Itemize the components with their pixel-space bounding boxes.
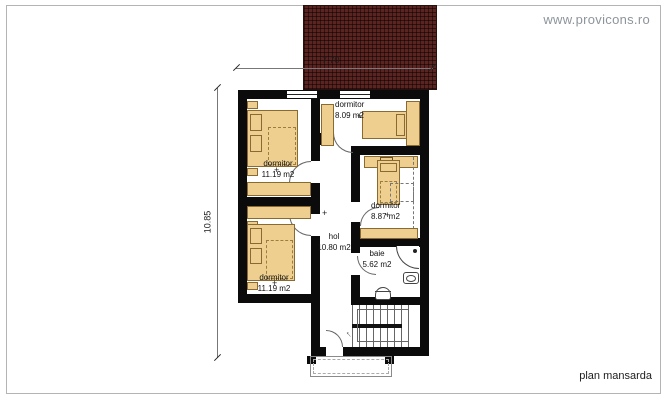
center-mark: + bbox=[357, 112, 362, 121]
wall-segment bbox=[238, 90, 429, 99]
center-mark: + bbox=[274, 166, 279, 175]
pillow bbox=[380, 163, 397, 172]
dimension-line-top bbox=[236, 68, 433, 69]
toilet-seat-line bbox=[375, 291, 391, 292]
wardrobe bbox=[247, 206, 311, 219]
roof-slope-line bbox=[413, 157, 415, 229]
dimension-line-left bbox=[217, 88, 218, 358]
center-mark: + bbox=[322, 209, 327, 218]
wall-segment bbox=[238, 294, 320, 303]
wardrobe bbox=[406, 101, 420, 146]
center-mark: + bbox=[385, 211, 390, 220]
pillow bbox=[250, 135, 262, 152]
pillow bbox=[250, 248, 262, 264]
center-mark: + bbox=[272, 279, 277, 288]
window bbox=[340, 91, 370, 98]
pillow bbox=[250, 114, 262, 131]
room-label-baie: baie 5.62 m2 bbox=[356, 248, 398, 270]
room-name: baie bbox=[356, 248, 398, 259]
wall-segment bbox=[420, 90, 429, 356]
room-name: hol bbox=[312, 231, 356, 242]
wall-segment bbox=[311, 183, 320, 214]
wall-segment bbox=[247, 197, 311, 206]
window bbox=[287, 91, 317, 98]
nightstand bbox=[247, 101, 258, 109]
room-area: 10.80 m2 bbox=[312, 242, 356, 253]
plan-title: plan mansarda bbox=[579, 370, 652, 382]
roof-hatch bbox=[303, 5, 437, 90]
toilet-icon bbox=[375, 287, 391, 300]
wall-segment bbox=[343, 347, 429, 356]
watermark-url: www.provicons.ro bbox=[543, 12, 650, 27]
pillow bbox=[396, 114, 405, 136]
dimension-height-label: 10.85 bbox=[202, 211, 212, 234]
floorplan-sheet: www.provicons.ro plan mansarda 7.70 10.8… bbox=[0, 0, 668, 400]
room-label-hol: hol 10.80 m2 bbox=[312, 231, 356, 253]
wardrobe bbox=[360, 228, 418, 239]
dimension-width-label: 7.70 bbox=[322, 55, 340, 65]
pillow bbox=[250, 228, 262, 244]
wardrobe bbox=[247, 182, 311, 196]
balcony-hatch bbox=[313, 359, 389, 374]
stair-outline bbox=[357, 309, 409, 342]
wall-segment bbox=[351, 155, 360, 202]
wall-segment bbox=[311, 347, 326, 356]
wall-segment bbox=[311, 99, 320, 161]
room-area: 5.62 m2 bbox=[356, 259, 398, 270]
shower-head-icon bbox=[413, 249, 417, 253]
wardrobe bbox=[321, 104, 334, 146]
room-name: dormitor bbox=[335, 99, 364, 110]
sink-basin bbox=[406, 275, 416, 282]
wall-segment bbox=[351, 275, 360, 297]
wall-segment bbox=[351, 146, 420, 155]
